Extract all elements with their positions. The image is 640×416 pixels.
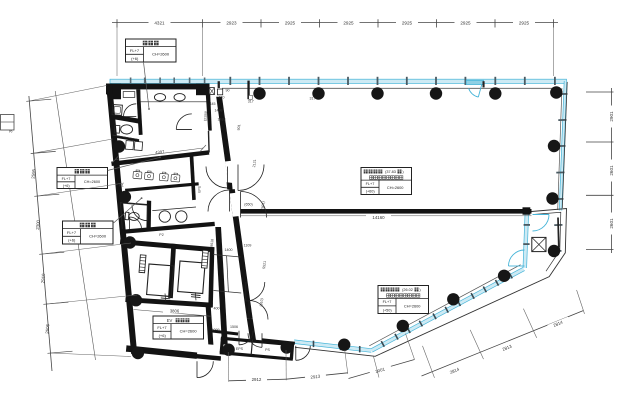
svg-text:CH=2600: CH=2600 xyxy=(387,185,404,190)
svg-text:FL+7: FL+7 xyxy=(130,48,140,53)
svg-text:2601: 2601 xyxy=(609,218,614,229)
svg-text:(650): (650) xyxy=(244,203,252,207)
svg-text:445: 445 xyxy=(210,102,216,106)
svg-text:2925: 2925 xyxy=(343,20,354,25)
svg-text:(+50): (+50) xyxy=(383,308,393,312)
svg-text:PS: PS xyxy=(265,348,270,352)
svg-text:(+6): (+6) xyxy=(68,238,76,243)
svg-text:470: 470 xyxy=(219,96,225,100)
svg-text:2595: 2595 xyxy=(31,168,37,179)
svg-text:EV: EV xyxy=(167,318,173,323)
svg-text:(2100): (2100) xyxy=(203,111,208,122)
svg-text:2913: 2913 xyxy=(310,374,321,380)
svg-text:(+6): (+6) xyxy=(131,56,139,61)
svg-text:CH=2600: CH=2600 xyxy=(152,52,170,57)
svg-text:P2: P2 xyxy=(159,233,163,237)
svg-text:1400: 1400 xyxy=(225,248,233,252)
svg-text:(+6): (+6) xyxy=(159,333,167,338)
svg-text:(37.83: (37.83 xyxy=(385,170,396,174)
svg-text:2606: 2606 xyxy=(45,323,51,334)
svg-text:2300: 2300 xyxy=(35,219,41,230)
svg-text:CH=2600: CH=2600 xyxy=(89,233,107,238)
svg-text:2901: 2901 xyxy=(609,111,614,122)
svg-text:317: 317 xyxy=(310,97,316,101)
svg-text:2923: 2923 xyxy=(226,20,237,25)
svg-text:4321: 4321 xyxy=(154,20,165,25)
svg-text:2912: 2912 xyxy=(252,377,262,382)
svg-text:2925: 2925 xyxy=(519,20,530,25)
svg-text:2925: 2925 xyxy=(285,20,296,25)
svg-text:1506: 1506 xyxy=(230,325,238,329)
svg-text:CH=2600: CH=2600 xyxy=(84,180,100,184)
svg-text:EPS: EPS xyxy=(236,347,244,351)
svg-text:2925: 2925 xyxy=(460,20,471,25)
svg-text:FL+7: FL+7 xyxy=(157,325,167,330)
svg-text:1109: 1109 xyxy=(244,244,252,248)
svg-text:2910: 2910 xyxy=(40,273,46,284)
svg-text:14160: 14160 xyxy=(372,215,385,220)
svg-text:2925: 2925 xyxy=(402,20,413,25)
svg-text:317: 317 xyxy=(248,99,254,103)
svg-text:CH=2600: CH=2600 xyxy=(404,304,421,309)
svg-text:(+6): (+6) xyxy=(63,184,71,188)
svg-text:P1: P1 xyxy=(119,184,123,188)
svg-text:FL+7: FL+7 xyxy=(67,230,77,235)
svg-text:1488: 1488 xyxy=(218,118,226,122)
svg-text:400: 400 xyxy=(214,307,220,311)
svg-text:90: 90 xyxy=(226,89,230,93)
svg-text:901: 901 xyxy=(237,124,241,130)
svg-text:FL+7: FL+7 xyxy=(383,300,392,304)
svg-text:(+60): (+60) xyxy=(366,190,376,194)
svg-text:1099: 1099 xyxy=(212,328,220,332)
svg-text:2601: 2601 xyxy=(609,165,614,176)
svg-text:1498: 1498 xyxy=(215,109,223,113)
svg-text:(26.02: (26.02 xyxy=(402,288,413,292)
svg-text:EPS: EPS xyxy=(197,185,202,193)
svg-text:FL+7: FL+7 xyxy=(366,182,375,186)
svg-text:FL+7: FL+7 xyxy=(62,177,71,181)
svg-text:3806: 3806 xyxy=(170,308,180,313)
svg-text:CH=2600: CH=2600 xyxy=(180,328,198,333)
